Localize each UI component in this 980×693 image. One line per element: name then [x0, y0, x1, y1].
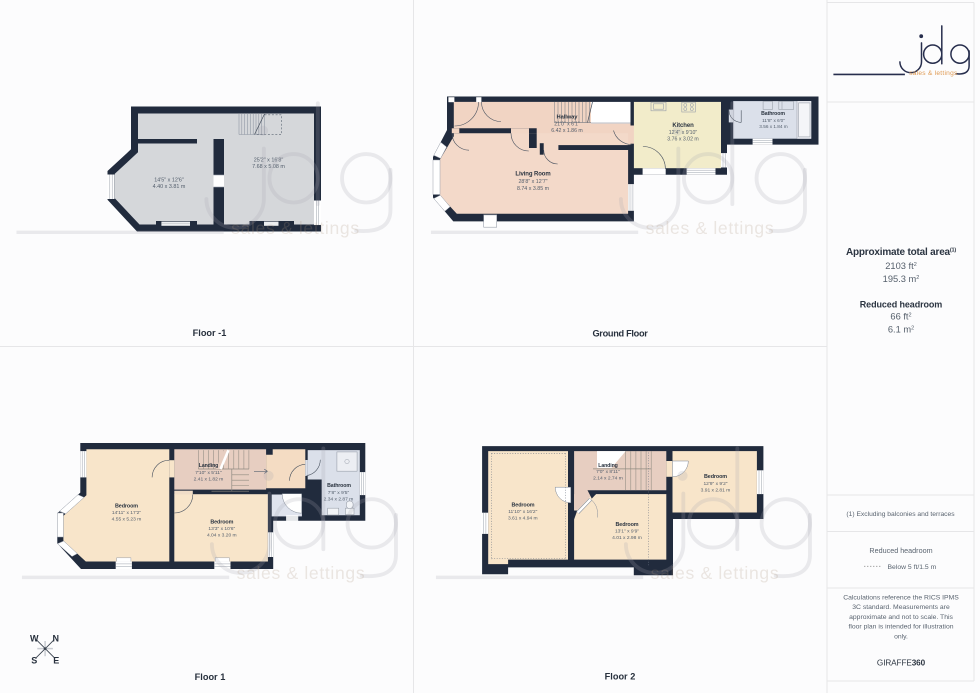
svg-text:28'8" x 12'7": 28'8" x 12'7" [518, 179, 547, 185]
svg-text:GIRAFFE360: GIRAFFE360 [877, 659, 926, 668]
svg-text:Floor -1: Floor -1 [193, 328, 227, 338]
svg-text:6.1 m2: 6.1 m2 [888, 325, 914, 335]
svg-text:approximate and not to scale.: approximate and not to scale. This [849, 614, 953, 621]
svg-text:Floor 1: Floor 1 [195, 672, 226, 682]
svg-text:Bedroom: Bedroom [210, 520, 233, 526]
svg-text:6.42 x 1.86 m: 6.42 x 1.86 m [551, 128, 582, 134]
svg-text:Approximate total area(1): Approximate total area(1) [846, 247, 956, 258]
svg-text:3.61 x 4.94 m: 3.61 x 4.94 m [508, 516, 538, 522]
svg-text:(1) Excluding balconies and te: (1) Excluding balconies and terraces [846, 511, 955, 518]
svg-text:11'8" x 6'0": 11'8" x 6'0" [762, 118, 785, 123]
svg-text:2.41 x 1.82 m: 2.41 x 1.82 m [194, 476, 224, 482]
svg-text:Landing: Landing [598, 463, 617, 469]
svg-text:Floor 2: Floor 2 [605, 672, 636, 682]
svg-text:Reduced headroom: Reduced headroom [869, 546, 932, 555]
svg-text:Landing: Landing [199, 463, 218, 469]
svg-text:7'8" x 9'5": 7'8" x 9'5" [328, 490, 350, 496]
svg-text:13'1" x 9'9": 13'1" x 9'9" [615, 529, 639, 535]
svg-text:4.04 x 3.20 m: 4.04 x 3.20 m [207, 533, 237, 539]
svg-text:2103 ft2: 2103 ft2 [885, 261, 917, 271]
svg-text:Living Room: Living Room [515, 172, 550, 178]
svg-text:Bathroom: Bathroom [327, 483, 351, 489]
svg-text:7'0" x 8'11": 7'0" x 8'11" [596, 469, 620, 475]
svg-text:floor plan is intended for ill: floor plan is intended for illustration [848, 624, 953, 631]
svg-text:Calculations reference the RIC: Calculations reference the RICS IPMS [843, 595, 959, 602]
svg-text:only.: only. [894, 633, 908, 640]
svg-text:14'11" x 17'2": 14'11" x 17'2" [112, 510, 141, 516]
svg-text:8.74 x 3.85 m: 8.74 x 3.85 m [517, 186, 550, 192]
svg-text:Bedroom: Bedroom [616, 522, 639, 528]
svg-text:S: S [31, 656, 37, 666]
svg-text:E: E [53, 656, 59, 666]
svg-text:4.01 x 2.98 m: 4.01 x 2.98 m [612, 535, 642, 541]
svg-text:Below 5 ft/1.5 m: Below 5 ft/1.5 m [888, 564, 937, 571]
svg-text:7'10" x 5'11": 7'10" x 5'11" [195, 470, 222, 476]
svg-text:W: W [30, 633, 39, 643]
svg-text:Reduced headroom: Reduced headroom [860, 300, 943, 310]
svg-text:14'5" x 12'6": 14'5" x 12'6" [154, 178, 184, 184]
svg-text:21'0" x 6'1": 21'0" x 6'1" [554, 121, 580, 127]
svg-text:Bedroom: Bedroom [704, 474, 727, 480]
svg-text:11'10" x 16'2": 11'10" x 16'2" [508, 509, 537, 515]
svg-text:N: N [53, 633, 60, 643]
svg-text:195.3 m2: 195.3 m2 [883, 274, 920, 284]
svg-text:4.55 x 5.23 m: 4.55 x 5.23 m [112, 517, 142, 523]
svg-text:Ground Floor: Ground Floor [592, 329, 648, 339]
svg-text:3.91 x 2.81 m: 3.91 x 2.81 m [701, 488, 731, 494]
svg-text:Hallway: Hallway [557, 114, 579, 120]
svg-text:2.14 x 2.74 m: 2.14 x 2.74 m [593, 476, 623, 482]
svg-text:Bedroom: Bedroom [512, 502, 535, 508]
svg-text:13'3" x 10'6": 13'3" x 10'6" [208, 526, 235, 532]
svg-text:4.40 x 3.81 m: 4.40 x 3.81 m [153, 184, 186, 190]
svg-text:2.34 x 2.87 m: 2.34 x 2.87 m [324, 497, 354, 503]
svg-text:3C standard. Measurements are: 3C standard. Measurements are [852, 604, 950, 611]
svg-text:Bathroom: Bathroom [761, 111, 785, 117]
svg-text:12'9" x 9'2": 12'9" x 9'2" [703, 481, 727, 487]
svg-text:66 ft2: 66 ft2 [890, 312, 911, 322]
svg-text:7.68 x 5.08 m: 7.68 x 5.08 m [252, 164, 285, 170]
svg-text:Bedroom: Bedroom [115, 504, 138, 510]
svg-text:3.76 x 3.02 m: 3.76 x 3.02 m [667, 136, 698, 142]
svg-text:3.56 x 1.84 m: 3.56 x 1.84 m [759, 124, 787, 129]
